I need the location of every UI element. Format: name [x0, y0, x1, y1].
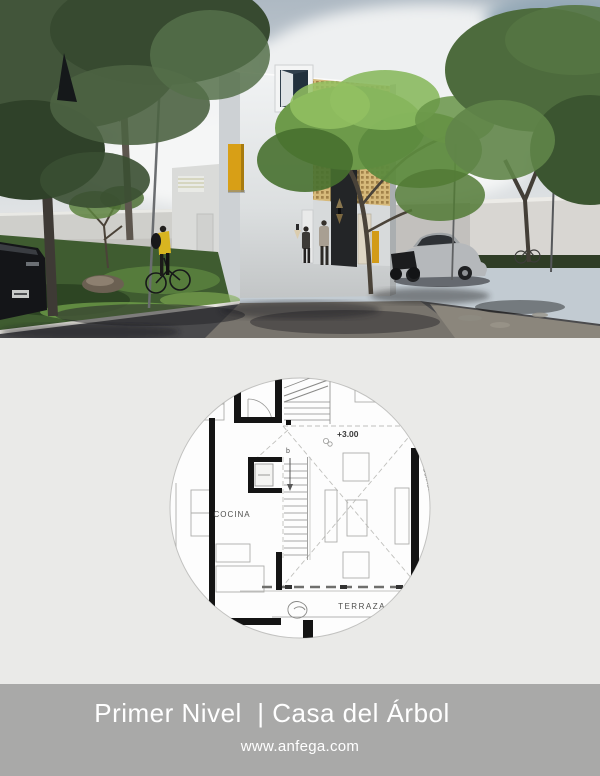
floor-plan-circle: COCINA TERRAZA +3.00 b Colinda — [0, 338, 600, 684]
section-marker — [286, 420, 291, 425]
website-link[interactable]: www.anfega.com — [241, 738, 359, 755]
terrace-label: TERRAZA — [338, 602, 386, 611]
exterior-render — [0, 0, 600, 338]
caption-bar: Primer Nivel | Casa del Árbol www.anfega… — [0, 684, 600, 776]
render-illustration — [0, 0, 600, 338]
yellow-shutter — [228, 144, 245, 193]
floor-plan-area: COCINA TERRAZA +3.00 b Colinda — [0, 338, 600, 684]
pantry-fixture — [255, 464, 273, 486]
stair-letter: b — [286, 448, 290, 455]
car-dark — [0, 242, 47, 320]
yellow-panel-entry — [372, 231, 379, 263]
page-title: Primer Nivel | Casa del Árbol — [94, 698, 450, 729]
level-annotation: +3.00 — [337, 429, 359, 439]
kitchen-label: COCINA — [213, 510, 250, 519]
poster-page: COCINA TERRAZA +3.00 b Colinda Primer Ni… — [0, 0, 600, 776]
